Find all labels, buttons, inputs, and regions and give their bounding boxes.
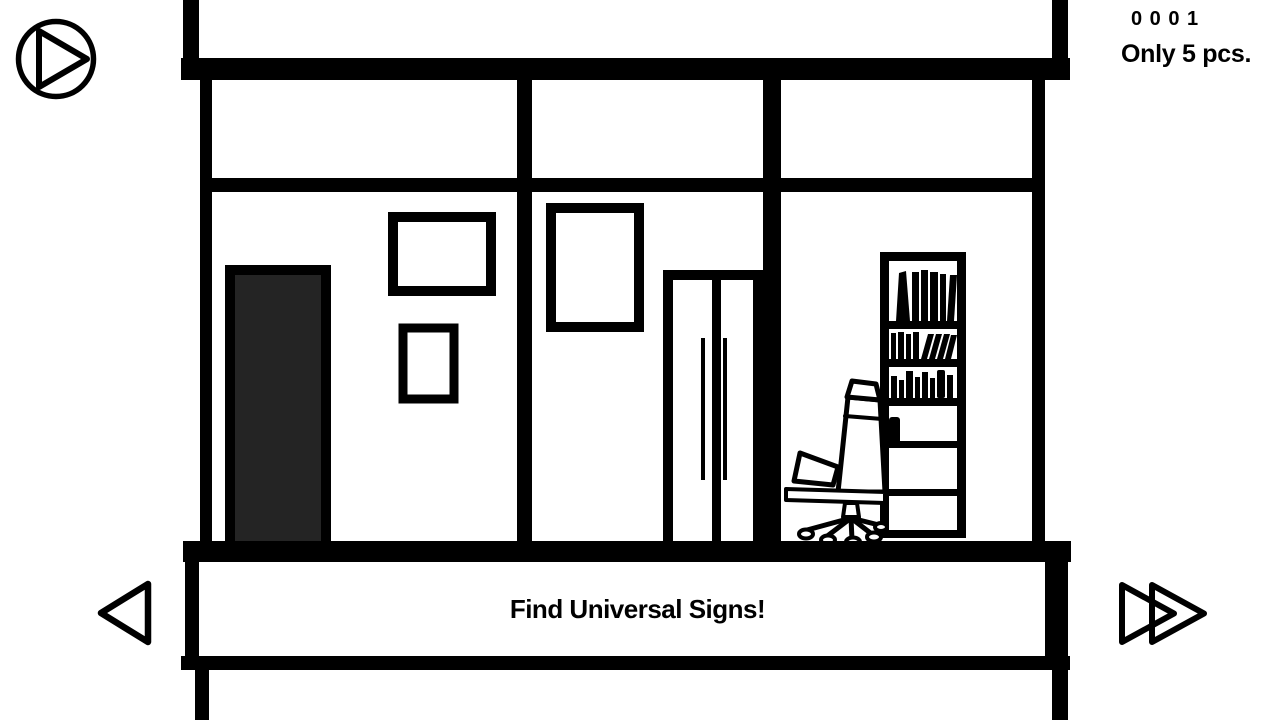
room-left-wall [200, 80, 212, 546]
play-button[interactable] [14, 17, 102, 105]
wardrobe-center-stile [712, 270, 721, 545]
office-chair[interactable] [786, 381, 887, 547]
room-right-wall [1032, 80, 1045, 546]
wardrobe-right-handle [723, 338, 727, 480]
game-screen: 0 0 0 1 Only 5 pcs. Find Universal Signs… [0, 0, 1280, 720]
instruction-banner: Find Universal Signs! [199, 562, 1046, 656]
banner-left-rail [185, 562, 199, 658]
section-divider-left [517, 80, 532, 546]
bottom-box-right-rail [1052, 670, 1068, 720]
bottom-box-left-rail [195, 670, 209, 720]
forward-button[interactable] [1113, 578, 1211, 650]
wardrobe-left-stile [663, 270, 673, 545]
shelf-object [889, 417, 900, 444]
double-door-wardrobe[interactable] [663, 270, 763, 545]
chair-column [843, 503, 859, 517]
chair-armrest [794, 453, 838, 485]
section-divider-right [763, 80, 781, 546]
found-counter: 0 0 0 1 [1131, 9, 1199, 29]
top-box-left-rail [183, 0, 199, 60]
back-button[interactable] [95, 578, 157, 650]
previous-triangle-icon [101, 584, 148, 642]
upper-band [181, 58, 1070, 80]
fast-forward-double-triangle-icon [1122, 585, 1204, 642]
chair-backrest [838, 397, 885, 492]
door-panel[interactable] [235, 275, 321, 541]
instruction-text: Find Universal Signs! [510, 594, 765, 625]
lower-band [181, 656, 1070, 670]
top-box-right-rail [1052, 0, 1068, 60]
wardrobe-right-stile [753, 270, 763, 545]
banner-right-rail [1045, 562, 1068, 658]
picture-frame-large[interactable] [393, 217, 491, 291]
play-circle-icon [19, 22, 94, 97]
chair-headrest [847, 381, 880, 400]
picture-frame-small[interactable] [403, 328, 454, 399]
wardrobe-left-handle [701, 338, 705, 480]
bookshelf-with-books[interactable] [880, 252, 966, 538]
dark-door[interactable] [225, 265, 331, 543]
chair-seat [786, 489, 885, 503]
floor-band [183, 541, 1071, 562]
pieces-limit-label: Only 5 pcs. [1121, 41, 1251, 69]
transom-sill [200, 178, 1045, 192]
picture-frame-tall[interactable] [551, 208, 639, 327]
